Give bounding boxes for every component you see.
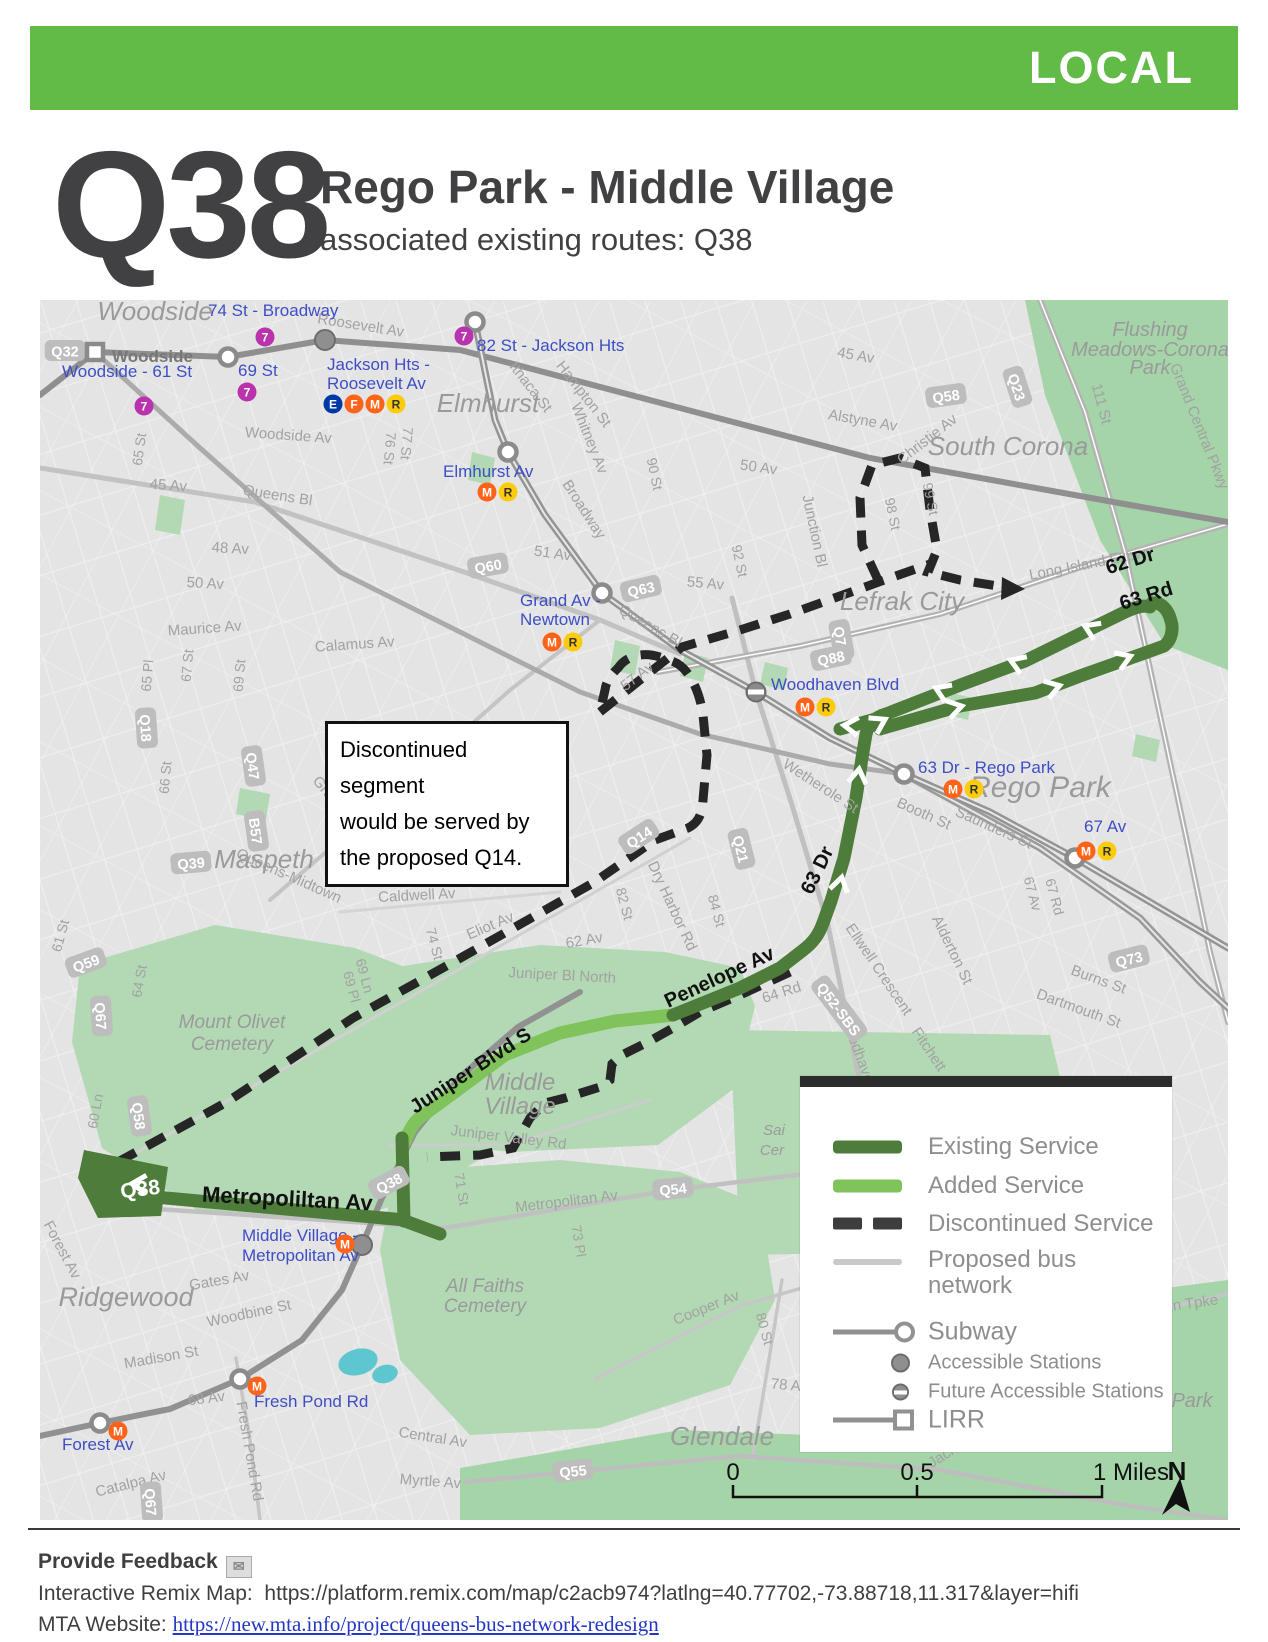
existing-service-swatch bbox=[833, 1141, 902, 1154]
street-label: 76 St bbox=[381, 431, 400, 465]
legend-top-bar bbox=[800, 1076, 1172, 1087]
station-label: 67 Av bbox=[1084, 817, 1127, 836]
station-middle-village-metropolitan-av: Middle Village -Metropolitan AvM bbox=[242, 1226, 372, 1265]
legend: Existing Service Added Service Discontin… bbox=[800, 1076, 1172, 1452]
bus-route-badge: Q54 bbox=[652, 1176, 695, 1201]
area-label: Woodside bbox=[97, 300, 213, 326]
page-subtitle: associated existing routes: Q38 bbox=[320, 222, 753, 258]
legend-label: Added Service bbox=[928, 1172, 1084, 1200]
area-label: Park bbox=[1129, 357, 1171, 379]
station-label: 82 St - Jackson Hts bbox=[477, 336, 624, 355]
station-label: Grand Av - bbox=[520, 591, 601, 610]
callout-line: the proposed Q14. bbox=[340, 840, 554, 876]
svg-text:M: M bbox=[800, 700, 810, 714]
discontinued-service-swatch bbox=[833, 1218, 902, 1231]
svg-text:R: R bbox=[970, 782, 979, 796]
subway-station-glyph bbox=[894, 1322, 915, 1343]
street-label: 67 St bbox=[178, 648, 197, 682]
page-title: Rego Park - Middle Village bbox=[320, 160, 894, 214]
svg-text:R: R bbox=[569, 635, 578, 649]
svg-text:Q18: Q18 bbox=[136, 714, 154, 742]
mta-website-line: MTA Website: https://new.mta.info/projec… bbox=[38, 1612, 659, 1637]
subway-line-glyph bbox=[833, 1330, 899, 1335]
svg-text:M: M bbox=[482, 485, 492, 499]
legend-item-accessible-stations: Accessible Stations bbox=[800, 1351, 1172, 1375]
north-label: N bbox=[1168, 1456, 1187, 1486]
station-label: 74 St - Broadway bbox=[208, 301, 339, 320]
street-label: 50 Av bbox=[186, 574, 225, 593]
svg-text:R: R bbox=[822, 700, 831, 714]
legend-item-lirr: LIRR bbox=[800, 1406, 1172, 1434]
street-label: 55 Av bbox=[686, 573, 725, 593]
svg-text:M: M bbox=[252, 1379, 262, 1393]
street-label: 66 St bbox=[156, 760, 175, 794]
bus-route-badge: Q67 bbox=[140, 1481, 164, 1520]
legend-label: Subway bbox=[928, 1318, 1017, 1347]
svg-text:Q67: Q67 bbox=[91, 1002, 109, 1030]
legend-label: LIRR bbox=[928, 1406, 985, 1435]
station-label: Woodhaven Blvd bbox=[771, 675, 899, 694]
area-label: South Corona bbox=[928, 431, 1088, 461]
svg-text:Q32: Q32 bbox=[51, 345, 78, 361]
legend-item-proposed-network-line2: network bbox=[800, 1272, 1172, 1298]
street-label: 65 Pl bbox=[138, 659, 157, 692]
svg-text:7: 7 bbox=[244, 385, 251, 399]
area-label: Sai bbox=[763, 1122, 785, 1139]
future-accessible-station-glyph bbox=[892, 1384, 909, 1401]
street-label: 69 St bbox=[230, 658, 249, 692]
legend-label: Future Accessible Stations bbox=[928, 1381, 1164, 1404]
svg-text:E: E bbox=[329, 397, 337, 411]
route-map: WoodsideElmhurstSouth CoronaLefrak CityM… bbox=[40, 300, 1228, 1520]
svg-text:R: R bbox=[392, 397, 401, 411]
svg-text:Q54: Q54 bbox=[659, 1181, 688, 1200]
street-label: 45 Av bbox=[149, 476, 188, 496]
proposed-network-swatch bbox=[833, 1259, 902, 1265]
street-label: 77 St bbox=[398, 426, 417, 460]
svg-text:M: M bbox=[340, 1237, 350, 1251]
scale-tick-0: 0 bbox=[726, 1459, 739, 1486]
svg-text:M: M bbox=[1081, 844, 1091, 858]
callout-note: Discontinued segment would be served by … bbox=[325, 721, 569, 887]
page: LOCAL Q38 Rego Park - Middle Village ass… bbox=[0, 0, 1268, 1642]
svg-text:F: F bbox=[350, 397, 357, 411]
callout-line: would be served by bbox=[340, 804, 554, 840]
svg-text:Q39: Q39 bbox=[177, 855, 206, 873]
provide-feedback-link[interactable]: Provide Feedback✉ bbox=[38, 1550, 252, 1578]
scale-tick-1-miles: 1 Miles bbox=[1093, 1459, 1169, 1486]
remix-map-url: Interactive Remix Map: https://platform.… bbox=[38, 1582, 1079, 1606]
area-label: Cemetery bbox=[191, 1034, 275, 1055]
accessible-station-glyph bbox=[891, 1354, 910, 1373]
bus-route-badge: Q67 bbox=[90, 995, 114, 1037]
service-type-label: LOCAL bbox=[1029, 26, 1194, 110]
area-label: Ridgewood bbox=[58, 1282, 194, 1312]
legend-label: Discontinued Service bbox=[928, 1210, 1153, 1238]
svg-text:Q55: Q55 bbox=[559, 1463, 588, 1482]
legend-item-added-service: Added Service bbox=[800, 1173, 1172, 1199]
svg-text:M: M bbox=[370, 397, 380, 411]
area-label: Lefrak City bbox=[840, 586, 966, 616]
station-label: Jackson Hts - bbox=[327, 355, 430, 374]
added-service-swatch bbox=[833, 1180, 902, 1193]
area-label: All Faiths bbox=[445, 1276, 525, 1297]
station-label: 69 St bbox=[238, 361, 278, 380]
svg-text:M: M bbox=[948, 782, 958, 796]
station-label: Newtown bbox=[520, 610, 590, 629]
area-label: Flushing bbox=[1112, 319, 1188, 341]
legend-label: Proposed bus bbox=[928, 1246, 1076, 1274]
area-label: Cemetery bbox=[444, 1296, 528, 1317]
svg-text:M: M bbox=[547, 635, 557, 649]
legend-item-existing-service: Existing Service bbox=[800, 1134, 1172, 1160]
area-label: Park bbox=[1171, 1390, 1213, 1412]
bus-route-badge: Q55 bbox=[552, 1458, 595, 1483]
svg-text:M: M bbox=[113, 1424, 123, 1438]
header-bar: LOCAL bbox=[30, 26, 1238, 110]
street-label: 48 Av bbox=[211, 539, 250, 558]
bus-route-badge: Q39 bbox=[170, 850, 212, 874]
svg-text:7: 7 bbox=[461, 329, 468, 343]
legend-item-discontinued-service: Discontinued Service bbox=[800, 1211, 1172, 1237]
station-label: Fresh Pond Rd bbox=[254, 1392, 368, 1411]
station-label: 63 Dr - Rego Park bbox=[918, 758, 1055, 777]
footer-divider bbox=[28, 1528, 1240, 1530]
legend-item-subway: Subway bbox=[800, 1319, 1172, 1345]
legend-label: Existing Service bbox=[928, 1133, 1099, 1161]
area-label: Mount Olivet bbox=[179, 1012, 286, 1033]
area-label: Cer bbox=[760, 1142, 785, 1159]
svg-text:Q67: Q67 bbox=[141, 1488, 159, 1516]
route-number: Q38 bbox=[52, 130, 327, 280]
legend-item-future-accessible-stations: Future Accessible Stations bbox=[800, 1380, 1172, 1404]
mta-website-link[interactable]: https://new.mta.info/project/queens-bus-… bbox=[173, 1612, 659, 1636]
legend-label: Accessible Stations bbox=[928, 1352, 1101, 1375]
scale-tick-half: 0.5 bbox=[900, 1459, 933, 1486]
svg-text:7: 7 bbox=[262, 330, 269, 344]
station-label: Roosevelt Av bbox=[327, 374, 426, 393]
route-street-label: Q38 bbox=[119, 1176, 162, 1204]
bus-route-badge: Q32 bbox=[45, 340, 86, 361]
svg-text:R: R bbox=[504, 485, 513, 499]
area-label: Village bbox=[484, 1093, 556, 1120]
area-label: Glendale bbox=[670, 1421, 774, 1451]
callout-line: Discontinued segment bbox=[340, 732, 554, 804]
area-label: Middle bbox=[485, 1069, 556, 1096]
feedback-icon: ✉ bbox=[226, 1556, 252, 1578]
station-label: Woodside - 61 St bbox=[62, 362, 192, 381]
station-label: Elmhurst Av bbox=[443, 462, 534, 481]
legend-label: network bbox=[928, 1272, 1012, 1300]
svg-text:7: 7 bbox=[141, 399, 148, 413]
bus-route-badge: Q18 bbox=[135, 707, 159, 749]
lirr-line-glyph bbox=[833, 1418, 899, 1423]
svg-text:R: R bbox=[1103, 844, 1112, 858]
lirr-station-glyph bbox=[893, 1410, 914, 1431]
